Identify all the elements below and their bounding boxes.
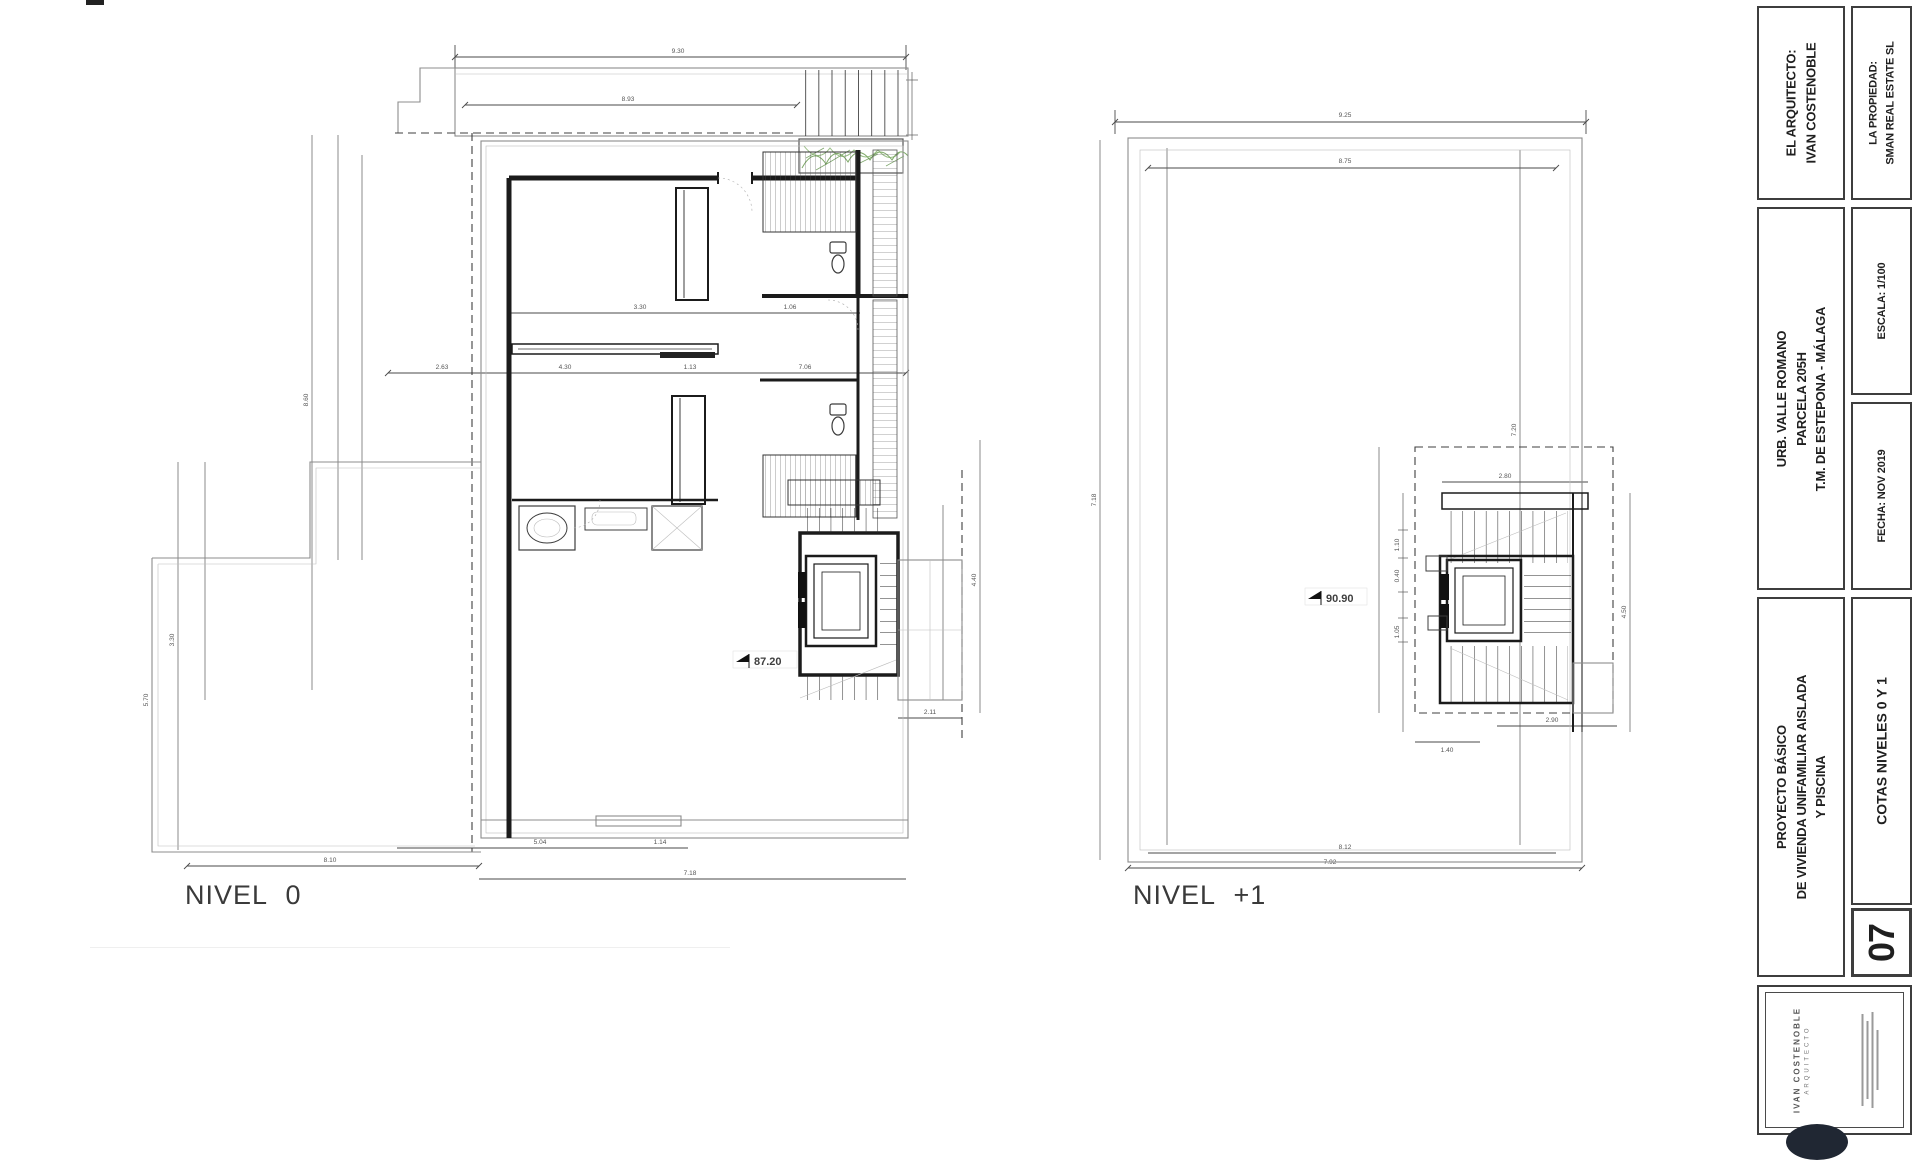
exterior-steps [1573,663,1613,713]
location-line: T.M. DE ESTEPONA - MÁLAGA [1811,306,1831,490]
vanity [585,508,647,530]
project-line: DE VIVIENDA UNIFAMILIAR AISLADA [1791,675,1811,900]
hatched-closet [763,152,856,232]
elevation-marker-nivel0: 87.20 [733,651,797,668]
project-box: PROYECTO BÁSICO DE VIVIENDA UNIFAMILIAR … [1757,597,1845,977]
dim-label: 4.40 [971,573,978,586]
dim-label: 2.63 [436,364,449,371]
dim-label: 4.50 [1621,605,1628,618]
dim-label: 2.11 [924,709,937,716]
elevation-value: 87.20 [754,656,782,668]
sheet-number: 07 [1855,923,1909,961]
dim-label: 7.18 [684,870,697,877]
nivel1-plan: 9.25 8.75 7.18 7.20 2.80 4.50 2.90 1.40 … [1091,110,1630,871]
architect-label: EL ARQUITECTO: [1782,43,1802,164]
stamp-block: IVAN COSTENOBLE ARQUITECTO [1757,985,1912,1135]
architectural-sheet: { "labels": { "nivel0": "NIVEL 0", "nive… [0,0,1920,1140]
dim-label: 8.75 [1339,158,1352,165]
dim-label: 0.40 [1394,569,1401,582]
elevation-value: 90.90 [1326,593,1354,605]
sliding-door [660,352,715,358]
dim-label: 8.93 [622,96,635,103]
owner-label: LA PROPIEDAD: [1865,41,1882,164]
dim-label: 7.06 [799,364,812,371]
architect-name: IVAN COSTENOBLE [1801,43,1821,164]
nivel1-dimension-labels: 9.25 8.75 7.18 7.20 2.80 4.50 2.90 1.40 … [1091,112,1628,866]
dim-label: 2.80 [1499,473,1512,480]
stamp-inner-frame: IVAN COSTENOBLE ARQUITECTO [1765,992,1904,1128]
stamp-role: ARQUITECTO [1803,1007,1812,1113]
nivel0-plan: 9.30 8.93 2.63 4.30 1.13 7.06 3.30 1.06 … [143,45,980,879]
dim-label: 4.30 [559,364,572,371]
dim-label: 2.90 [1546,717,1559,724]
shower [652,506,702,550]
sheet-title: COTAS NIVELES 0 Y 1 [1871,677,1892,825]
door-swing [718,178,752,212]
project-line: Y PISCINA [1811,675,1831,900]
nivel1-label: NIVEL +1 [1133,880,1266,911]
owner-box: LA PROPIEDAD: SMAN REAL ESTATE SL [1851,6,1912,200]
dim-label: 8.10 [324,857,337,864]
nivel0-label: NIVEL 0 [185,880,302,911]
dim-label: 1.10 [1394,538,1401,551]
bathtub [519,506,575,550]
plans-drawing: 9.30 8.93 2.63 4.30 1.13 7.06 3.30 1.06 … [0,0,1920,1140]
shaft [873,150,897,296]
dim-label: 1.06 [784,304,797,311]
date-value: FECHA: NOV 2019 [1873,450,1890,543]
elevator [798,556,876,646]
owner-name: SMAN REAL ESTATE SL [1882,41,1899,164]
date-box: FECHA: NOV 2019 [1851,402,1912,590]
dim-label: 1.13 [684,364,697,371]
dim-label: 9.25 [1339,112,1352,119]
nivel1-dimension-lines [1100,110,1630,871]
dim-label: 1.05 [1394,625,1401,638]
stamp-name: IVAN COSTENOBLE [1791,1007,1803,1113]
door-swing [828,300,858,330]
dim-label: 5.04 [534,839,547,846]
dim-label: 1.40 [1441,747,1454,754]
stamp-contact-lines [1859,1012,1882,1108]
nivel0-stair-core [788,470,962,742]
dim-label: 8.60 [303,393,310,406]
sheet-title-box: COTAS NIVELES 0 Y 1 [1851,597,1912,905]
dim-label: 1.14 [654,839,667,846]
wardrobe [676,188,708,300]
dim-label: 5.70 [143,693,150,706]
wc-symbol [830,404,846,435]
location-box: URB. VALLE ROMANO PARCELA 205H T.M. DE E… [1757,207,1845,590]
nivel1-stair-core [1426,493,1613,732]
location-line: PARCELA 205H [1791,306,1811,490]
dim-label: 3.30 [634,304,647,311]
wc-symbol [830,242,846,273]
scale-value: ESCALA: 1/100 [1873,263,1890,340]
nivel1-exterior-walls [1128,138,1582,862]
elevation-marker-nivel1: 90.90 [1305,588,1367,605]
project-line: PROYECTO BÁSICO [1772,675,1792,900]
nivel0-roof-louvers [398,68,908,136]
wardrobe [672,396,705,504]
dim-label: 9.30 [672,48,685,55]
dim-label: 7.18 [1091,493,1098,506]
scale-box: ESCALA: 1/100 [1851,207,1912,395]
architect-logo [1786,1124,1848,1160]
dim-label: 3.30 [169,633,176,646]
architect-box: EL ARQUITECTO: IVAN COSTENOBLE [1757,6,1845,200]
door-swing [572,500,600,528]
location-line: URB. VALLE ROMANO [1772,306,1792,490]
sheet-number-box: 07 [1851,908,1912,977]
dim-label: 7.20 [1511,423,1518,436]
